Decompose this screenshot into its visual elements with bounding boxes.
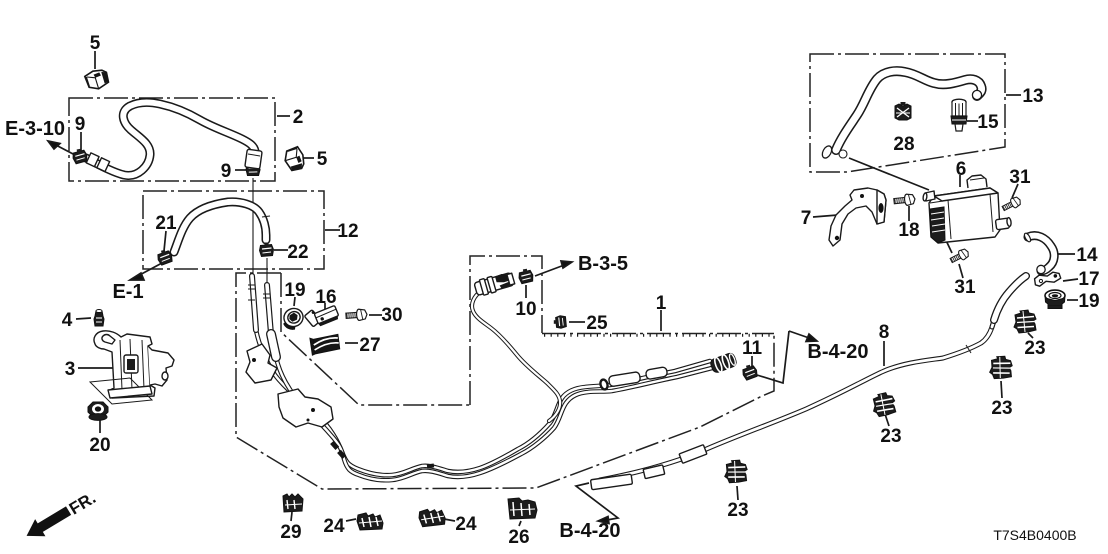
svg-text:23: 23 [991,398,1012,419]
svg-text:B-3-5: B-3-5 [578,253,628,275]
svg-text:29: 29 [280,522,301,543]
svg-text:3: 3 [65,359,76,380]
svg-text:22: 22 [287,242,308,263]
svg-text:10: 10 [515,299,536,320]
svg-text:31: 31 [954,277,976,298]
svg-text:17: 17 [1078,269,1099,290]
svg-text:19: 19 [1078,291,1099,312]
svg-text:28: 28 [893,134,914,155]
svg-text:21: 21 [155,213,177,234]
svg-text:31: 31 [1009,167,1031,188]
svg-text:15: 15 [977,112,999,133]
svg-text:8: 8 [879,322,890,343]
svg-text:E-3-10: E-3-10 [5,118,65,140]
svg-text:27: 27 [359,335,380,356]
svg-text:23: 23 [727,500,748,521]
svg-text:B-4-20: B-4-20 [559,520,620,542]
svg-text:14: 14 [1076,245,1098,266]
svg-text:19: 19 [284,280,305,301]
svg-text:5: 5 [90,33,101,54]
svg-text:9: 9 [221,161,232,182]
svg-text:23: 23 [1024,338,1045,359]
svg-text:4: 4 [62,310,73,331]
svg-text:5: 5 [317,149,328,170]
svg-text:12: 12 [337,221,358,242]
svg-text:E-1: E-1 [112,281,143,303]
svg-text:T7S4B0400B: T7S4B0400B [993,527,1076,543]
svg-text:20: 20 [89,435,110,456]
svg-text:7: 7 [801,208,812,229]
svg-text:18: 18 [898,220,919,241]
svg-text:B-4-20: B-4-20 [807,341,868,363]
svg-text:11: 11 [742,338,763,359]
svg-text:13: 13 [1022,86,1043,107]
svg-text:26: 26 [508,527,529,548]
svg-text:25: 25 [586,313,608,334]
svg-text:30: 30 [381,305,402,326]
svg-text:16: 16 [315,287,336,308]
svg-text:24: 24 [323,516,345,537]
svg-text:1: 1 [656,293,667,314]
svg-text:24: 24 [455,514,477,535]
svg-text:9: 9 [75,114,86,135]
svg-text:2: 2 [293,107,304,128]
svg-text:6: 6 [956,159,967,180]
svg-text:23: 23 [880,426,901,447]
